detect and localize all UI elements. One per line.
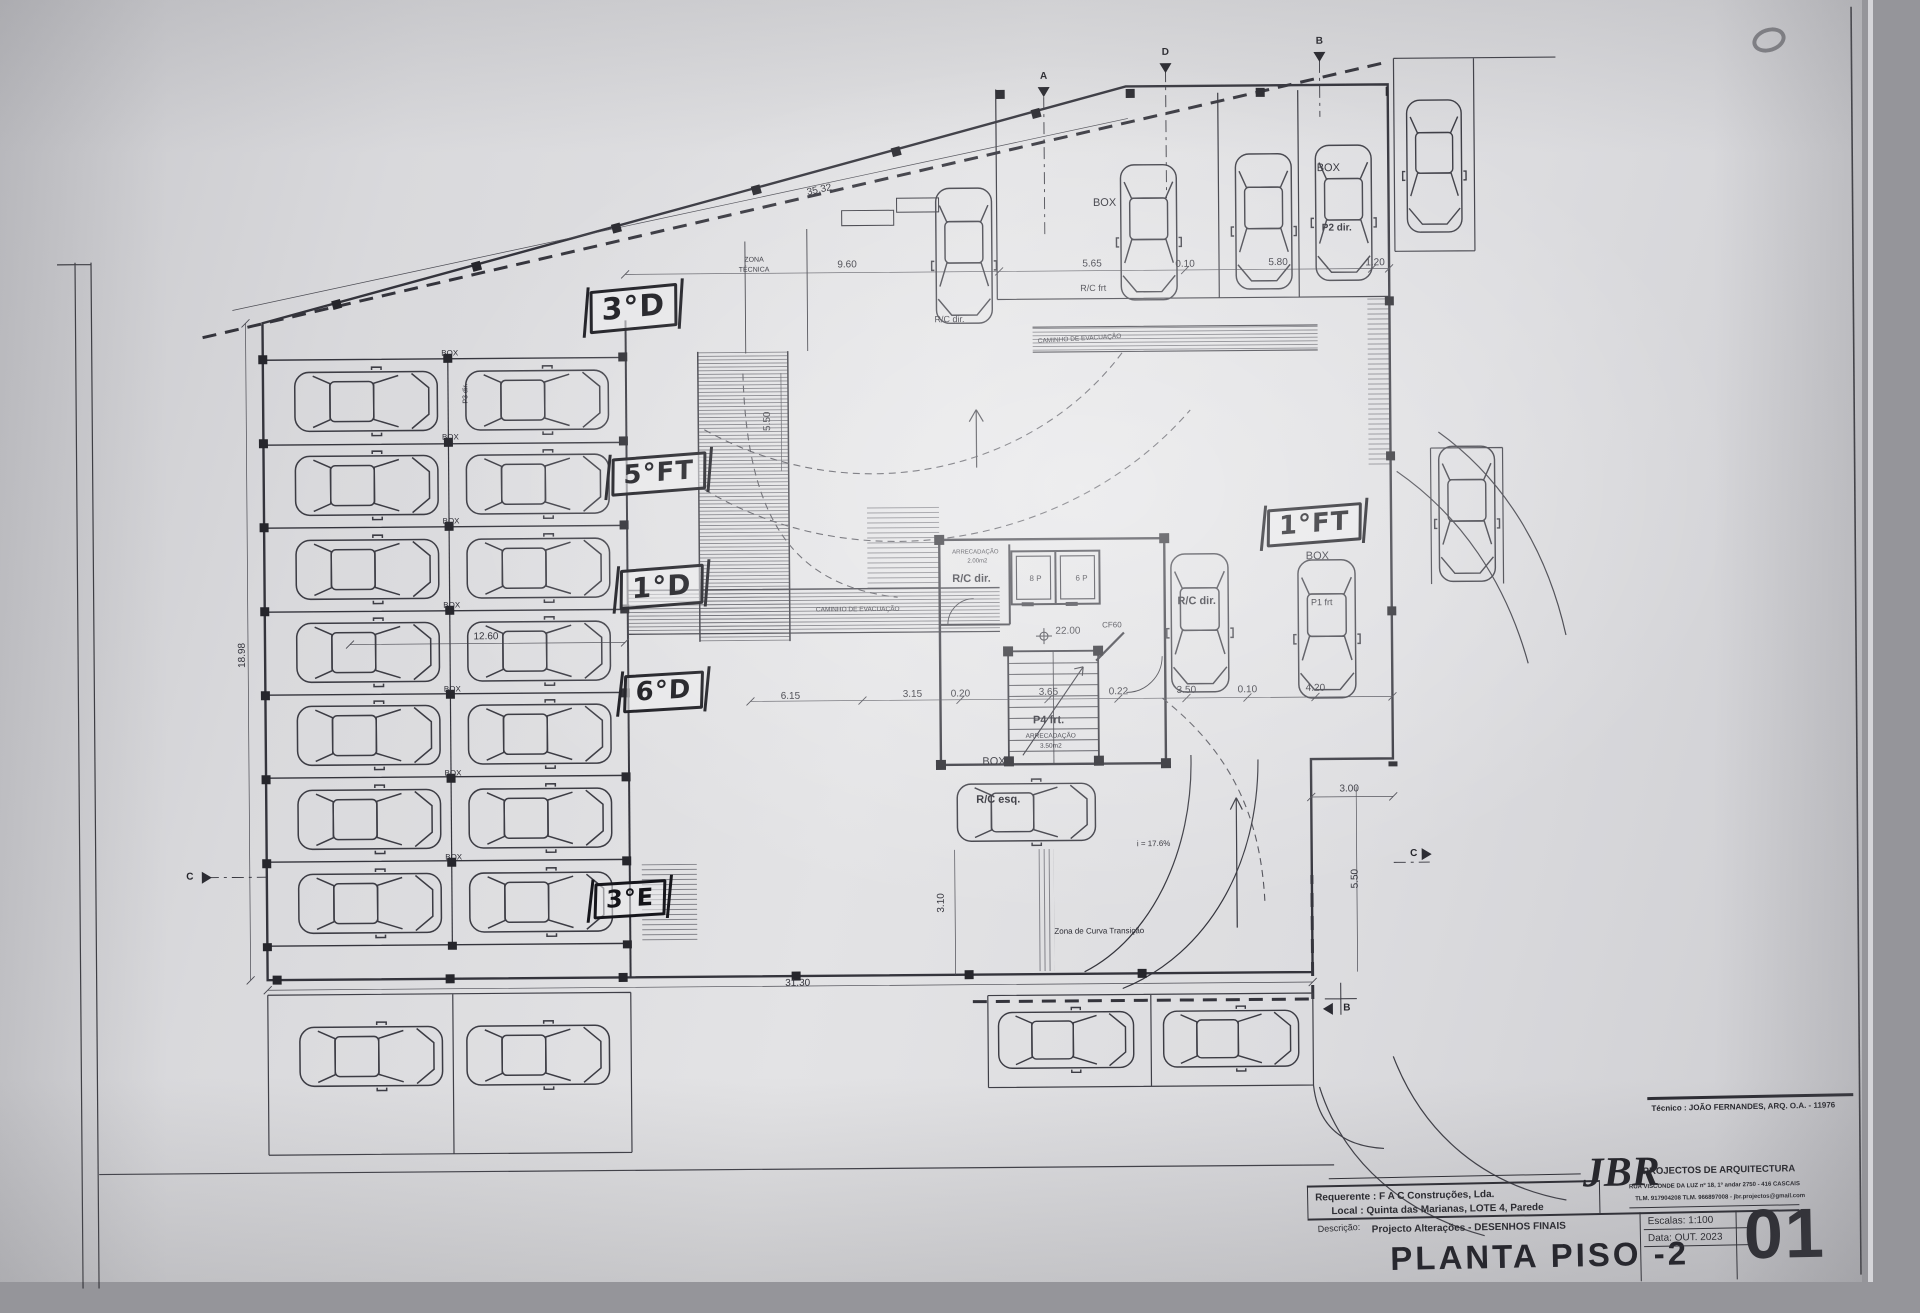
scale-field: Escalas: 1:100 bbox=[1648, 1216, 1714, 1227]
sheet-number: 01 bbox=[1743, 1198, 1826, 1270]
titleblock-rule bbox=[1647, 1093, 1853, 1100]
client-name: Requerente : F A C Construções, Lda. bbox=[1315, 1190, 1494, 1203]
date-field: Data: OUT. 2023 bbox=[1648, 1233, 1723, 1244]
paper-edge bbox=[1868, 0, 1873, 1282]
firm-tagline: PROJECTOS DE ARQUITECTURA bbox=[1643, 1164, 1796, 1176]
titleblock-rule bbox=[1329, 1173, 1581, 1179]
technician-credit: Técnico : JOÃO FERNANDES, ARQ. O.A. - 11… bbox=[1651, 1101, 1835, 1113]
description-label: Descrição: bbox=[1318, 1223, 1361, 1234]
titleblock-rule bbox=[1644, 1227, 1756, 1230]
drawing-sheet: BOXBOXBOXBOXBOXBOXBOXP3 dir.BOXR/C frtBO… bbox=[0, 0, 1862, 1282]
sheet-title: PLANTA PISO -2 bbox=[1390, 1236, 1689, 1275]
titleblock-rule bbox=[1307, 1180, 1599, 1188]
photographed-floor-plan: { "page": { "sheet_title": "PLANTA PISO … bbox=[0, 0, 1920, 1282]
description-text: Projecto Alterações - DESENHOS FINAIS bbox=[1372, 1222, 1566, 1236]
title-block: Técnico : JOÃO FERNANDES, ARQ. O.A. - 11… bbox=[0, 0, 1863, 1313]
titleblock-rule bbox=[1307, 1186, 1309, 1219]
